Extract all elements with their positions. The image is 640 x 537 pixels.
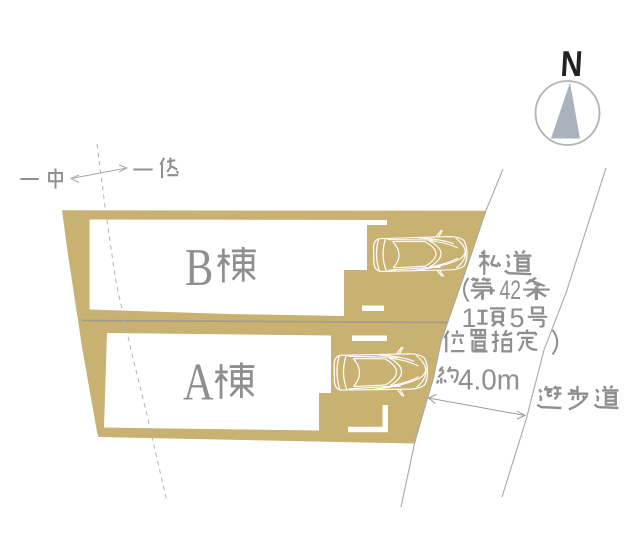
svg-text:42: 42 bbox=[500, 275, 522, 305]
svg-text:4.0m: 4.0m bbox=[458, 365, 520, 397]
svg-text:1: 1 bbox=[462, 303, 477, 333]
svg-text:N: N bbox=[559, 45, 583, 85]
svg-text:B: B bbox=[185, 239, 213, 298]
svg-text:5: 5 bbox=[510, 303, 525, 333]
svg-text:A: A bbox=[183, 353, 214, 412]
